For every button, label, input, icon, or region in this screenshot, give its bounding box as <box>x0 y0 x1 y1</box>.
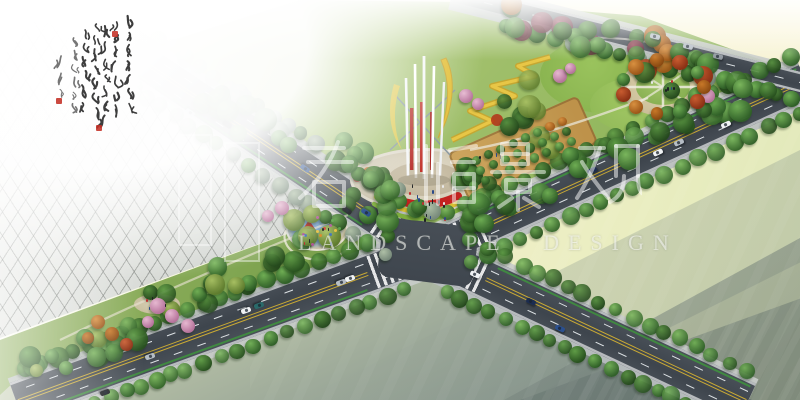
person <box>671 87 673 90</box>
person <box>651 81 653 84</box>
brand-logo-icon <box>224 142 260 262</box>
brand-logo-icon <box>178 134 212 246</box>
person <box>152 297 154 300</box>
person <box>671 80 673 83</box>
person <box>667 87 669 90</box>
red-seal-icon <box>56 98 62 104</box>
red-seal-icon <box>112 31 118 37</box>
brand-cjk-lin-icon <box>412 138 482 216</box>
calligraphy-inscription <box>36 8 156 138</box>
person <box>146 299 148 302</box>
person <box>424 218 426 221</box>
brand-cjk-jun-icon <box>292 138 362 216</box>
person <box>444 217 446 220</box>
red-seal-icon <box>96 125 102 131</box>
person <box>430 216 432 219</box>
brand-en-watermark: LANDSCAPE DESIGN <box>298 230 678 256</box>
brand-cjk-guan-icon <box>572 138 642 216</box>
person <box>149 307 151 310</box>
brand-cjk-jing-icon <box>482 138 552 216</box>
rendering-canvas: LANDSCAPE DESIGN <box>0 0 800 400</box>
person <box>165 304 167 307</box>
person <box>673 87 675 90</box>
